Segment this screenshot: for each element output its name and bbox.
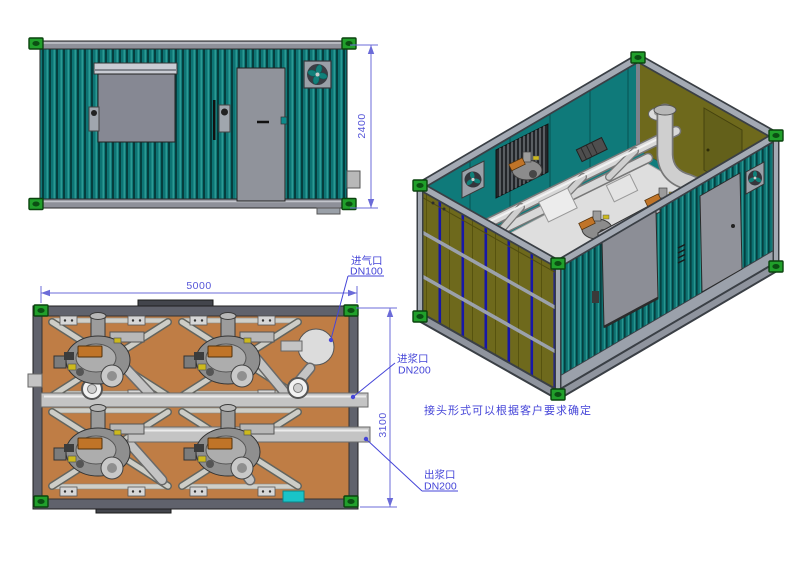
- top-rail: [33, 41, 353, 49]
- air-tank: [298, 329, 334, 365]
- step-tab: [317, 208, 340, 214]
- control-box: [283, 491, 304, 502]
- slurry-outlet-size: DN200: [424, 481, 457, 493]
- cad-drawing-page: 2400: [0, 0, 800, 566]
- door: [237, 68, 285, 201]
- plan-view: [28, 300, 370, 513]
- window-latch: [89, 107, 99, 131]
- bottom-rail: [33, 199, 353, 208]
- cad-drawing: 2400: [0, 0, 800, 566]
- callout-slurry-inlet: 进浆口 DN200: [351, 352, 431, 399]
- iso-shutter-handle: [592, 291, 599, 303]
- dimension-length-label: 5000: [186, 280, 211, 292]
- window-awning: [94, 63, 177, 74]
- slurry-inlet-label: 进浆口: [397, 352, 429, 365]
- exhaust-fan-icon: [304, 61, 331, 88]
- air-inlet-size: DN100: [350, 266, 383, 278]
- container-wall-corrugation: [40, 48, 347, 203]
- door-lock: [281, 117, 287, 124]
- slurry-outlet-label: 出浆口: [424, 468, 456, 481]
- side-elevation-view: [29, 38, 360, 214]
- callout-slurry-outlet: 出浆口 DN200: [364, 437, 458, 493]
- connector-note: 接头形式可以根据客户要求确定: [424, 403, 592, 417]
- window-shutter: [98, 74, 175, 142]
- slurry-inlet-size: DN200: [398, 365, 431, 377]
- side-pipe-stub: [347, 171, 360, 188]
- dimension-height-label: 2400: [356, 113, 368, 138]
- isometric-view: [413, 52, 783, 400]
- dimension-width-label: 3100: [377, 412, 389, 437]
- tank-stub-pipe: [281, 341, 302, 351]
